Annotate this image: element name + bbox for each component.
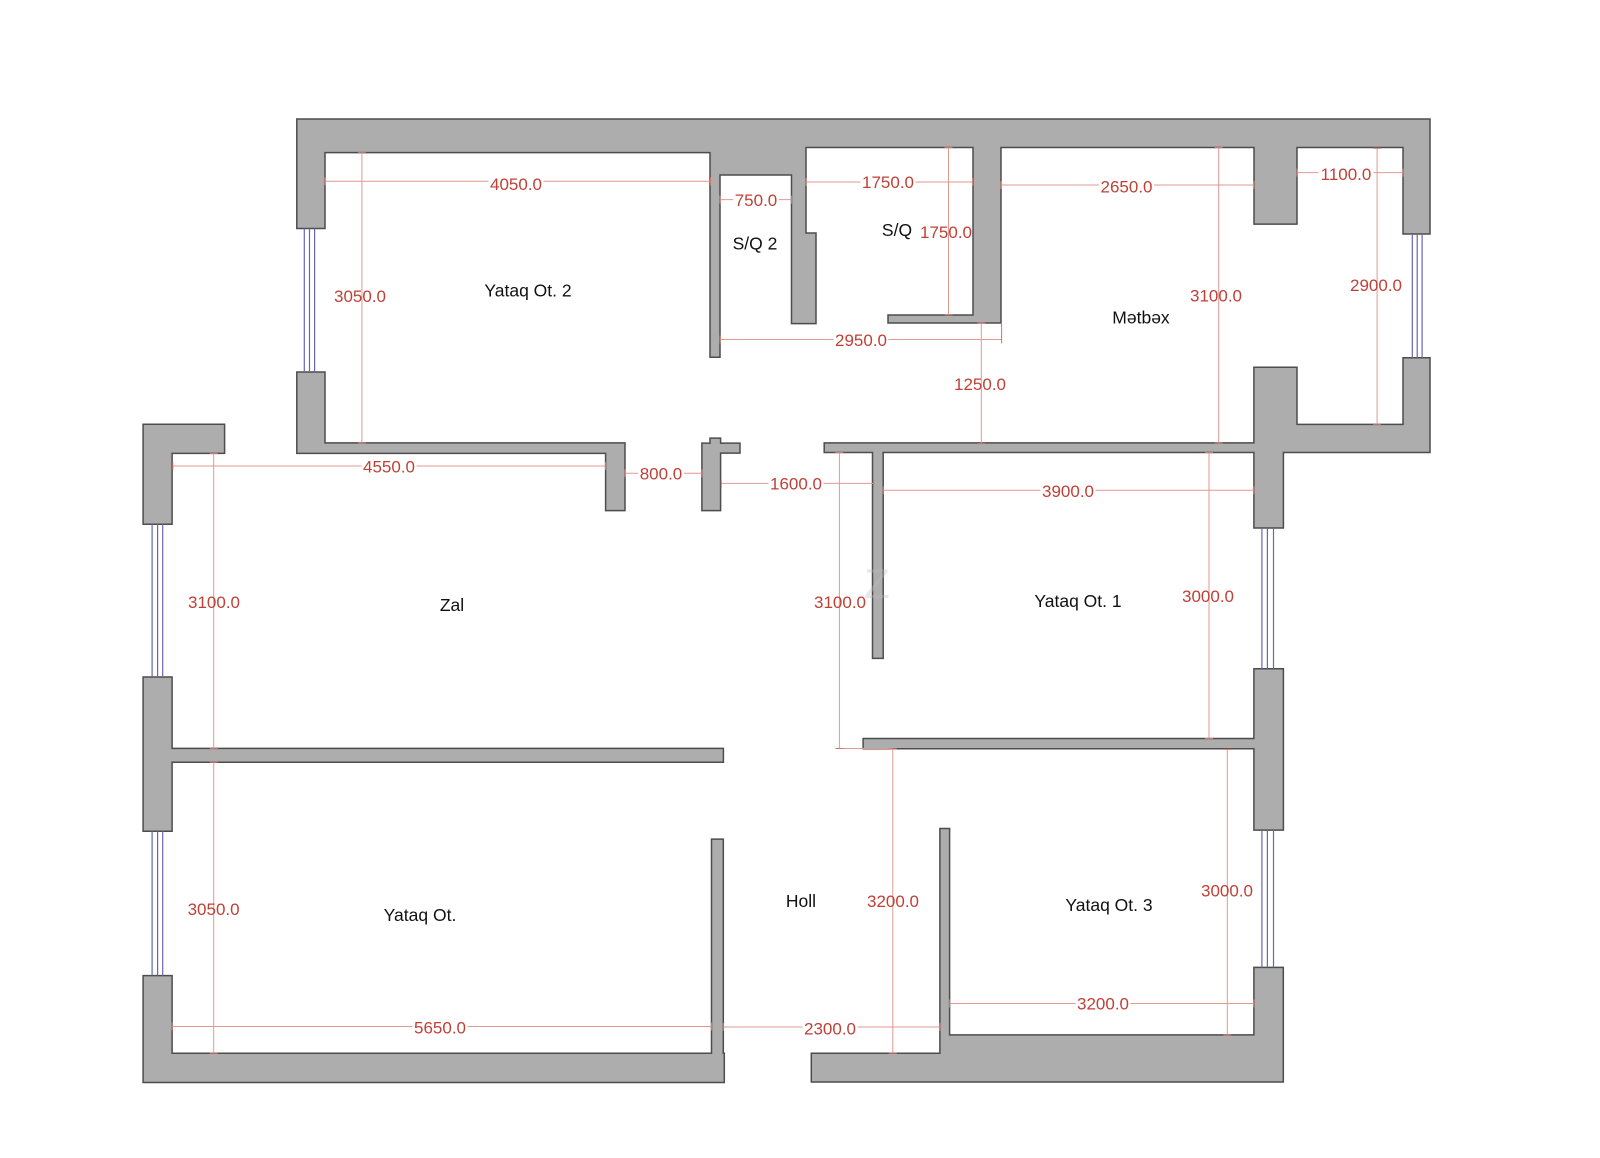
svg-text:Yataq Ot. 3: Yataq Ot. 3 xyxy=(1065,895,1152,915)
svg-text:2650.0: 2650.0 xyxy=(1101,178,1153,197)
svg-text:Mətbəx: Mətbəx xyxy=(1112,308,1170,328)
svg-text:S/Q: S/Q xyxy=(882,220,912,240)
svg-text:3200.0: 3200.0 xyxy=(867,892,919,911)
svg-text:3100.0: 3100.0 xyxy=(814,593,866,612)
svg-text:Zal: Zal xyxy=(440,595,464,615)
svg-text:Z: Z xyxy=(864,560,890,607)
svg-text:3200.0: 3200.0 xyxy=(1077,995,1129,1014)
svg-text:1600.0: 1600.0 xyxy=(770,475,822,494)
svg-text:Yataq Ot. 1: Yataq Ot. 1 xyxy=(1034,591,1121,611)
svg-text:1250.0: 1250.0 xyxy=(954,375,1006,394)
svg-text:Yataq Ot.: Yataq Ot. xyxy=(384,905,457,925)
svg-text:3100.0: 3100.0 xyxy=(1190,287,1242,306)
svg-text:3900.0: 3900.0 xyxy=(1042,482,1094,501)
svg-text:3000.0: 3000.0 xyxy=(1201,882,1253,901)
svg-text:3050.0: 3050.0 xyxy=(188,900,240,919)
svg-text:1750.0: 1750.0 xyxy=(862,173,914,192)
svg-text:800.0: 800.0 xyxy=(640,465,683,484)
svg-text:S/Q 2: S/Q 2 xyxy=(733,234,778,254)
svg-text:1100.0: 1100.0 xyxy=(1321,165,1372,184)
svg-text:1750.0: 1750.0 xyxy=(920,223,972,242)
svg-text:Yataq Ot. 2: Yataq Ot. 2 xyxy=(484,281,571,301)
svg-text:2950.0: 2950.0 xyxy=(835,331,887,350)
svg-text:3050.0: 3050.0 xyxy=(334,287,386,306)
svg-text:3000.0: 3000.0 xyxy=(1182,587,1234,606)
svg-text:4050.0: 4050.0 xyxy=(490,175,542,194)
svg-text:4550.0: 4550.0 xyxy=(363,458,415,477)
svg-text:2900.0: 2900.0 xyxy=(1350,276,1402,295)
svg-text:Holl: Holl xyxy=(786,891,816,911)
svg-text:5650.0: 5650.0 xyxy=(414,1018,466,1037)
svg-text:3100.0: 3100.0 xyxy=(188,593,240,612)
svg-text:750.0: 750.0 xyxy=(735,191,778,210)
svg-text:2300.0: 2300.0 xyxy=(804,1019,856,1038)
